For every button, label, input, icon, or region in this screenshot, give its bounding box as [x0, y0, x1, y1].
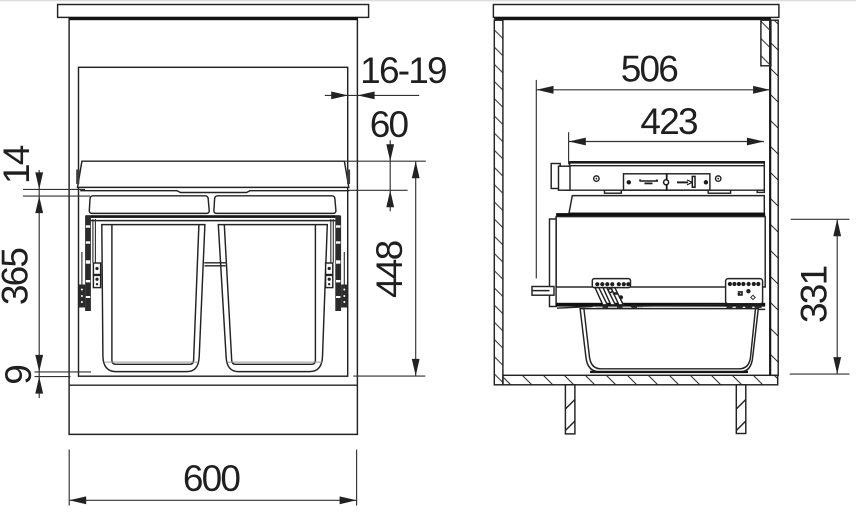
svg-text:365: 365: [0, 248, 36, 306]
svg-text:60: 60: [370, 104, 409, 145]
svg-text:16-19: 16-19: [360, 50, 446, 91]
svg-text:14: 14: [0, 145, 37, 184]
svg-text:423: 423: [640, 101, 697, 142]
svg-text:600: 600: [183, 458, 241, 499]
svg-text:448: 448: [369, 241, 410, 298]
svg-text:506: 506: [621, 48, 678, 89]
svg-text:331: 331: [793, 266, 834, 323]
svg-text:9: 9: [0, 366, 39, 385]
